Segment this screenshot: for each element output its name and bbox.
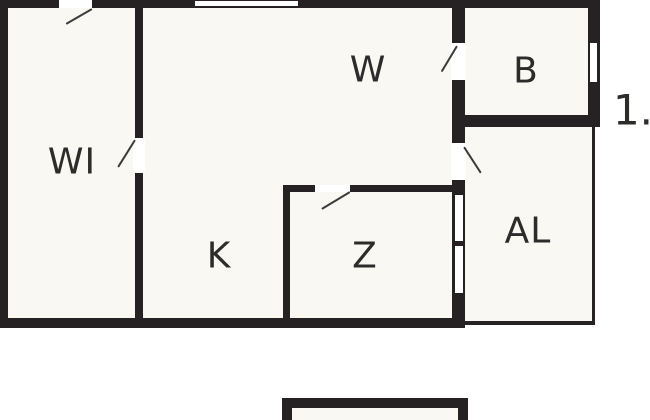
- wall-al-right-thin: [592, 127, 595, 325]
- wall-z-left: [283, 185, 290, 318]
- room-label-w: W: [350, 50, 387, 91]
- floor-number-label: 1.: [613, 86, 650, 135]
- top-wall-window: [195, 1, 298, 6]
- lower-floor-wall-top: [282, 398, 468, 408]
- wall-al-bottom-thin: [465, 321, 595, 325]
- entry-door-opening: [59, 0, 92, 8]
- wall-bottom: [0, 318, 465, 328]
- wall-b-bottom: [452, 115, 600, 127]
- room-label-z: Z: [352, 236, 378, 277]
- z-al-window-upper: [455, 195, 463, 241]
- wall-wb-column-seg5: [452, 293, 465, 318]
- wall-z-top: [283, 185, 453, 192]
- wi-door-leaf: [133, 138, 145, 172]
- wall-left: [0, 0, 8, 326]
- room-label-wi: WI: [48, 142, 96, 183]
- wall-wb-column-seg1: [452, 8, 465, 43]
- wall-wi-divider-lower: [135, 173, 143, 318]
- room-label-k: K: [207, 236, 232, 277]
- z-door-leaf: [315, 185, 350, 192]
- lower-floor-interior: [292, 408, 458, 420]
- room-label-b: B: [513, 51, 539, 92]
- lower-floor-wall-right: [458, 398, 468, 420]
- wall-wb-column-seg2: [452, 80, 465, 143]
- wall-wb-column-seg3: [452, 180, 465, 195]
- z-al-window-lower: [455, 246, 463, 293]
- wall-wi-divider-upper: [135, 8, 143, 138]
- floorplan-page: { "plan": { "floor_label": "1.", "rooms"…: [0, 0, 650, 420]
- room-label-al: AL: [505, 211, 552, 252]
- b-right-window: [590, 43, 597, 82]
- lower-floor-wall-left: [282, 398, 292, 420]
